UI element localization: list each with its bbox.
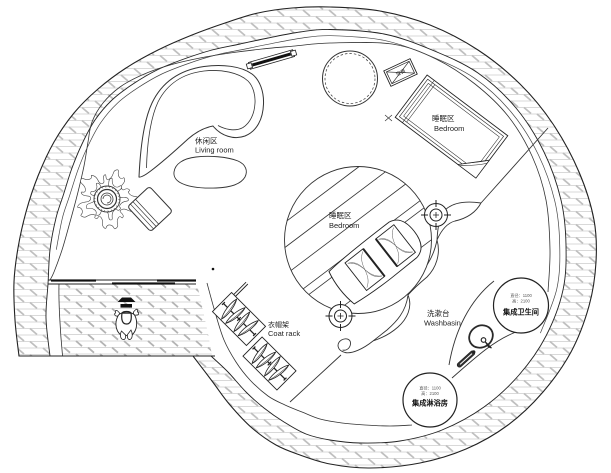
svg-text:高：2100: 高：2100 (512, 298, 530, 305)
svg-text:休闲区: 休闲区 (195, 136, 218, 146)
svg-text:睡眠区: 睡眠区 (329, 211, 352, 220)
svg-text:集成卫生间: 集成卫生间 (502, 308, 539, 317)
svg-text:集成淋浴房: 集成淋浴房 (411, 399, 448, 408)
svg-text:高：2100: 高：2100 (421, 390, 439, 397)
svg-text:直径：1100: 直径：1100 (419, 385, 441, 391)
svg-text:睡眠区: 睡眠区 (432, 114, 455, 123)
svg-text:Coat rack: Coat rack (268, 329, 300, 338)
svg-text:Living room: Living room (195, 146, 234, 155)
svg-text:Bedroom: Bedroom (329, 221, 359, 230)
svg-text:直径：1100: 直径：1100 (510, 292, 532, 298)
svg-text:Bedroom: Bedroom (434, 124, 464, 133)
svg-text:洗漱台: 洗漱台 (427, 308, 450, 318)
svg-text:Washbasin: Washbasin (424, 319, 461, 328)
svg-text:衣帽架: 衣帽架 (268, 320, 289, 329)
